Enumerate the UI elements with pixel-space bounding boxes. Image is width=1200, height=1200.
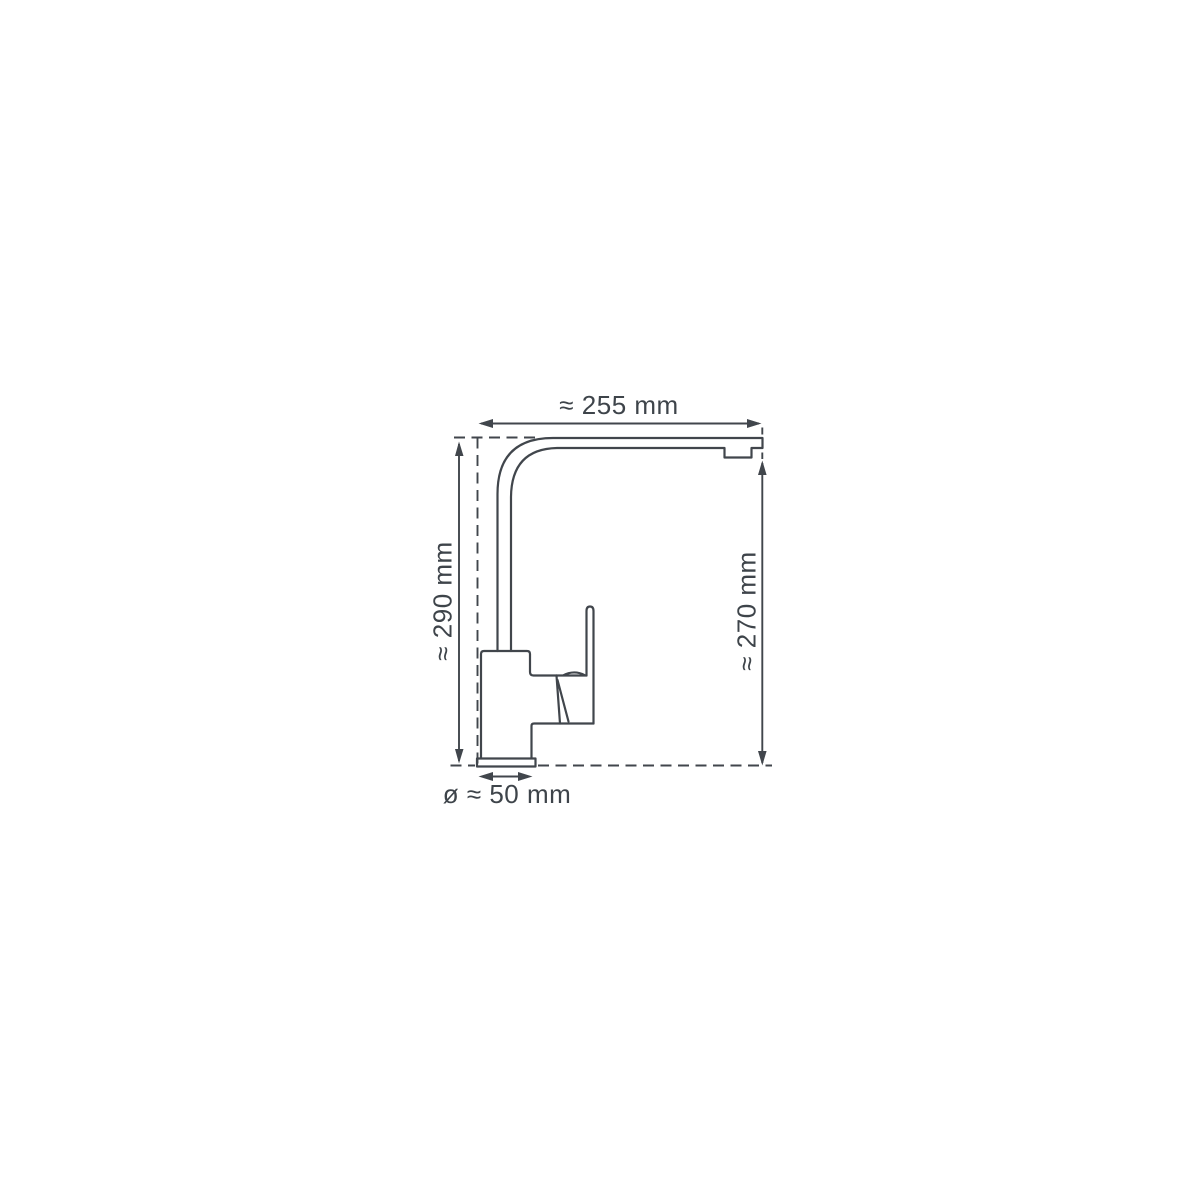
faucet-dimension-diagram: ≈ 255 mm ≈ 290 mm ≈ 270 mm ø ≈ 50 mm [0,0,1200,1200]
body-lower-outline [532,724,594,759]
label-spout-reach: ≈ 255 mm [559,390,678,420]
handle-outline [587,607,594,724]
label-base-diameter: ø ≈ 50 mm [443,779,572,809]
arrowhead-top-right [747,419,762,428]
cartridge-lines [557,676,569,724]
label-spout-height: ≈ 270 mm [732,551,762,670]
base-plate [477,759,536,767]
handle-underside-arc [557,672,587,675]
arrowhead-right-up [758,461,767,476]
arrowhead-right-down [758,751,767,766]
arrowhead-left-down [455,749,464,764]
body-outline [481,651,557,758]
diagram-canvas: ≈ 255 mm ≈ 290 mm ≈ 270 mm ø ≈ 50 mm [0,0,1200,1200]
faucet-outline-group [477,438,763,767]
spout-outline [498,438,763,651]
arrowhead-top-left [479,419,494,428]
arrowheads-group [455,419,767,781]
arrowhead-left-up [455,442,464,457]
label-total-height: ≈ 290 mm [428,541,458,660]
